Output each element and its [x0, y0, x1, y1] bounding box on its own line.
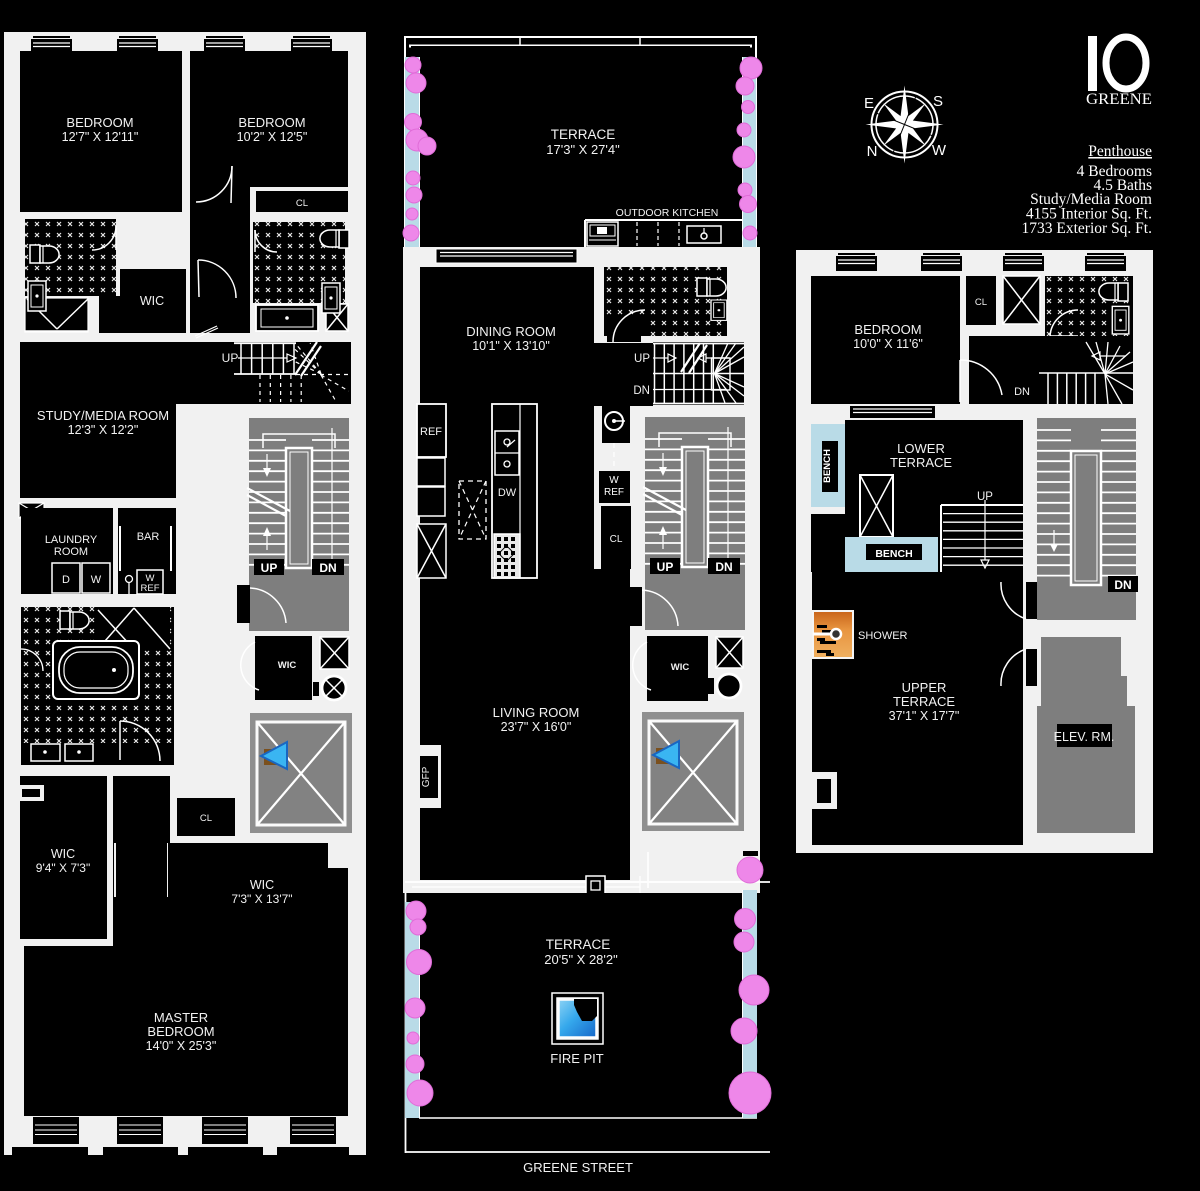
svg-text:UP: UP [977, 491, 993, 503]
svg-text:CL: CL [200, 813, 212, 824]
svg-text:FIRE PIT: FIRE PIT [550, 1051, 604, 1066]
svg-text:37'1" X 17'7": 37'1" X 17'7" [889, 709, 960, 723]
svg-text:W: W [91, 574, 102, 586]
svg-text:BEDROOM: BEDROOM [854, 322, 921, 337]
svg-text:TERRACE: TERRACE [890, 455, 952, 470]
svg-text:ROOM: ROOM [54, 546, 88, 558]
svg-text:9'4" X 7'3": 9'4" X 7'3" [36, 861, 90, 875]
svg-text:DINING ROOM: DINING ROOM [466, 324, 556, 339]
svg-text:LAUNDRY: LAUNDRY [45, 534, 98, 546]
svg-text:W: W [609, 475, 619, 486]
svg-text:10'0" X 11'6": 10'0" X 11'6" [853, 337, 923, 351]
svg-text:STUDY/MEDIA ROOM: STUDY/MEDIA ROOM [37, 408, 169, 423]
svg-text:WIC: WIC [51, 847, 75, 861]
svg-text:WIC: WIC [140, 294, 164, 308]
svg-text:BEDROOM: BEDROOM [147, 1024, 214, 1039]
svg-text:17'3" X 27'4": 17'3" X 27'4" [546, 142, 620, 157]
svg-text:S: S [933, 93, 943, 110]
svg-text:1733 Exterior Sq. Ft.: 1733 Exterior Sq. Ft. [1022, 220, 1152, 237]
svg-text:12'7" X 12'11": 12'7" X 12'11" [62, 130, 139, 144]
svg-text:12'3" X 12'2": 12'3" X 12'2" [68, 423, 139, 437]
svg-text:REF: REF [420, 426, 442, 438]
svg-text:LIVING ROOM: LIVING ROOM [493, 705, 580, 720]
svg-text:BENCH: BENCH [875, 548, 912, 560]
svg-text:BEDROOM: BEDROOM [238, 115, 305, 130]
svg-text:D: D [62, 574, 70, 586]
svg-text:10'1" X 13'10": 10'1" X 13'10" [472, 339, 550, 353]
svg-text:UP: UP [222, 351, 239, 365]
svg-text:CL: CL [975, 297, 987, 308]
svg-text:SHOWER: SHOWER [858, 630, 908, 642]
svg-text:REF: REF [141, 583, 160, 594]
svg-text:ELEV. RM.: ELEV. RM. [1054, 730, 1115, 744]
svg-text:10'2" X 12'5": 10'2" X 12'5" [237, 130, 308, 144]
svg-text:TERRACE: TERRACE [546, 937, 611, 952]
svg-text:CL: CL [610, 534, 623, 545]
svg-text:BENCH: BENCH [822, 449, 833, 483]
svg-text:E: E [864, 95, 874, 112]
svg-text:REF: REF [604, 487, 624, 498]
svg-text:MASTER: MASTER [154, 1010, 208, 1025]
svg-text:BAR: BAR [137, 531, 160, 543]
svg-text:23'7" X 16'0": 23'7" X 16'0" [501, 720, 572, 734]
svg-text:20'5" X 28'2": 20'5" X 28'2" [544, 952, 618, 967]
svg-text:WIC: WIC [250, 878, 274, 892]
svg-text:TERRACE: TERRACE [893, 694, 955, 709]
svg-text:UP: UP [634, 353, 650, 365]
svg-text:7'3" X 13'7": 7'3" X 13'7" [231, 892, 292, 906]
svg-text:UPPER: UPPER [902, 680, 947, 695]
svg-text:W: W [932, 142, 947, 159]
svg-text:TERRACE: TERRACE [551, 127, 616, 142]
svg-text:BEDROOM: BEDROOM [66, 115, 133, 130]
svg-text:DW: DW [498, 487, 517, 499]
svg-text:CL: CL [296, 198, 308, 209]
svg-text:OUTDOOR KITCHEN: OUTDOOR KITCHEN [616, 207, 719, 219]
svg-text:GREENE: GREENE [1086, 91, 1152, 108]
svg-text:WIC: WIC [278, 660, 297, 671]
svg-text:DN: DN [633, 385, 650, 397]
svg-text:GFP: GFP [421, 766, 432, 787]
svg-text:GREENE STREET: GREENE STREET [523, 1160, 633, 1175]
svg-text:LOWER: LOWER [897, 441, 945, 456]
svg-text:DN: DN [1014, 386, 1030, 398]
svg-text:WIC: WIC [671, 662, 690, 673]
svg-text:14'0" X 25'3": 14'0" X 25'3" [146, 1039, 217, 1053]
svg-text:N: N [867, 143, 878, 160]
svg-text:Penthouse: Penthouse [1088, 143, 1152, 160]
